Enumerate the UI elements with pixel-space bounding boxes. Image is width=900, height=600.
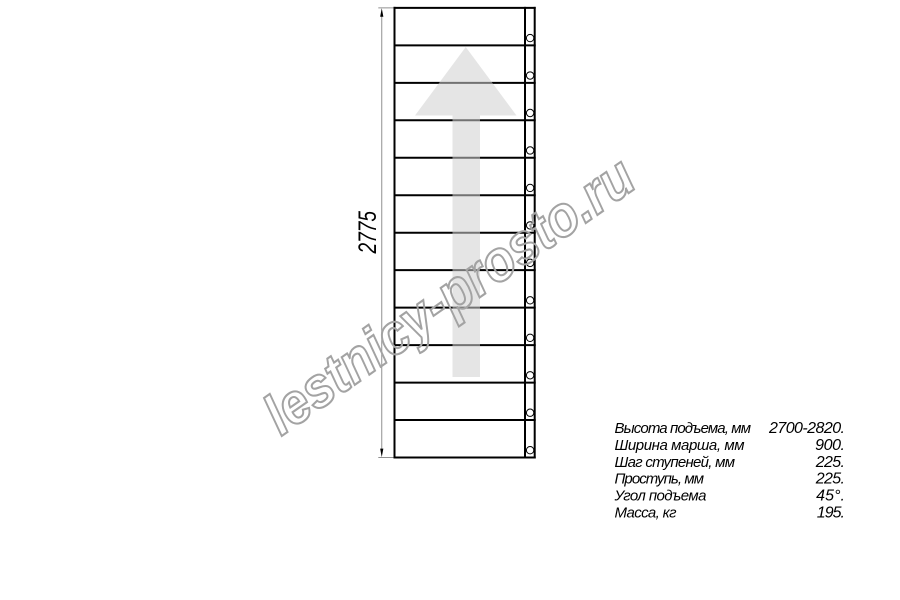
svg-text:2700-2820.: 2700-2820.	[768, 420, 845, 437]
svg-text:195.: 195.	[817, 505, 845, 522]
svg-text:Проступь, мм: Проступь, мм	[615, 471, 705, 488]
svg-text:2775: 2775	[354, 210, 382, 254]
svg-text:Шаг ступеней, мм: Шаг ступеней, мм	[615, 454, 736, 471]
svg-text:225.: 225.	[815, 471, 845, 488]
svg-text:45°.: 45°.	[816, 488, 845, 505]
svg-text:225.: 225.	[815, 454, 845, 471]
svg-text:Угол подъема: Угол подъема	[614, 488, 707, 505]
svg-text:Ширина марша, мм: Ширина марша, мм	[615, 437, 745, 454]
svg-text:Масса, кг: Масса, кг	[615, 505, 678, 522]
svg-text:900.: 900.	[815, 437, 845, 454]
svg-text:Высота подъема, мм: Высота подъема, мм	[615, 420, 752, 437]
